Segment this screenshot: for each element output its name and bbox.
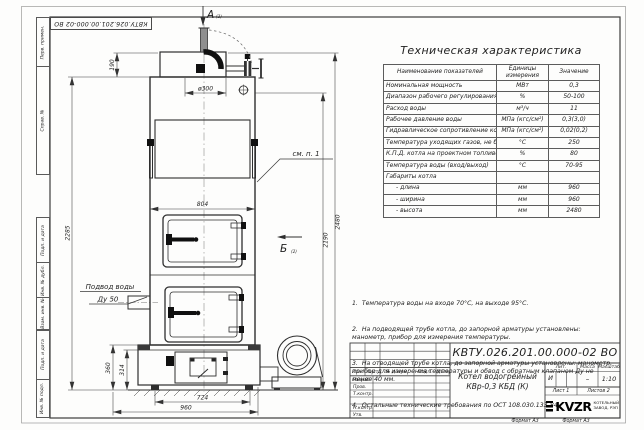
tb-row-nkontr: Н.контр.: [352, 405, 373, 412]
spec-row: Температура уходящих газов, не более°С25…: [384, 137, 600, 148]
tb-scale-label: Масштаб: [598, 365, 620, 371]
margin-field-inv-dubl: Инв. № дубл.: [36, 262, 50, 298]
ash-door: [166, 352, 228, 383]
middle-door: [163, 215, 246, 267]
tb-scale-value: 1:10: [598, 376, 620, 383]
format-label-2: Формат А3: [556, 419, 596, 424]
kvzr-logo-text: KVZR: [555, 399, 591, 414]
margin-field-inv-podl: Инв. № подл.: [36, 379, 50, 419]
upper-panel: [147, 120, 258, 178]
callout-see-item: см. п. 1: [292, 150, 319, 158]
dim-960-label: 960: [180, 405, 192, 412]
dim-2190-label: 2190: [323, 232, 330, 247]
tb-col-dokum: № докум.: [380, 369, 414, 376]
margin-field-vzam-inv: Взам. инв. №: [36, 297, 50, 330]
spec-row: Расход водым³/ч11: [384, 103, 600, 114]
tb-col-podp: Подп.: [414, 369, 436, 376]
spec-col-name: Наименование показателей: [384, 65, 497, 81]
margin-field-sprav-no: Справ. №: [36, 66, 50, 175]
manufacturer-logo: KVZR КОТЕЛЬНЫЙ ЗАВОД. РЭП: [546, 396, 619, 416]
view-a-ref: (2): [216, 14, 222, 19]
title-block-doc-number: КВТУ.026.201.00.000-02 ВО: [450, 344, 620, 362]
margin-field-podp-data-2: Подп. и дата: [36, 330, 50, 380]
spec-row: - ширинамм960: [384, 194, 600, 205]
tb-lit-value: И: [545, 375, 556, 382]
tb-col-list: Лист: [365, 369, 380, 376]
product-name: Котел водогрейный КВр-0,3 КБД (К): [451, 372, 544, 392]
margin-field-perv-primen: Перв. примен.: [36, 17, 50, 67]
view-b-ref: (2): [291, 249, 297, 254]
tb-row-tkontr: Т.контр.: [352, 391, 373, 398]
spec-row: К.П.Д. котла на проектном топливе%80: [384, 149, 600, 160]
spec-row: Номинальная мощностьМВт0,3: [384, 81, 600, 92]
tb-lit-label: Лит.: [545, 365, 577, 371]
spec-header-row: Наименование показателей Единицы измерен…: [384, 65, 600, 81]
spec-col-units: Единицы измерения: [497, 65, 549, 81]
dimensions: [68, 53, 339, 416]
kvzr-logo-tagline: КОТЕЛЬНЫЙ ЗАВОД. РЭП: [593, 401, 619, 411]
view-a-arrow: [201, 6, 206, 26]
doc-number-rotated-box: КВТУ.026.201.00.000-02 ВО: [50, 17, 152, 30]
lower-door: [165, 287, 244, 342]
water-inlet-label-2: Ду 50: [97, 296, 119, 304]
tb-mass-value: –: [577, 376, 598, 383]
water-inlet-label-1: Подвод воды: [86, 283, 135, 291]
dim-314-label: 314: [119, 364, 126, 376]
kvzr-logo-icon: [546, 401, 553, 412]
note-2: 2. На подводящей трубе котла, до запорно…: [352, 326, 614, 342]
tb-col-data: Дата: [436, 369, 450, 376]
drawing-sheet: ø300 190 2285 804 2480 2190 360 314 724 …: [0, 0, 644, 430]
dim-360-label: 360: [105, 362, 112, 374]
tb-mass-label: Масса: [577, 365, 598, 371]
tb-col-izm: Изм.: [350, 369, 365, 376]
spec-row: - длинамм960: [384, 183, 600, 194]
spec-row: Габариты котла: [384, 172, 600, 183]
format-label-1: Формат А3: [505, 419, 545, 424]
note-1: 1. Температура воды на входе 70°С, на вы…: [352, 300, 614, 308]
dim-190-label: 190: [109, 59, 116, 71]
view-b-label: Б: [280, 243, 287, 255]
tb-row-utv: Утв.: [352, 412, 373, 419]
spec-col-value: Значение: [549, 65, 600, 81]
doc-number-rotated: КВТУ.026.201.00.000-02 ВО: [54, 20, 148, 27]
spec-row: Температура воды (вход/выход)°С70-95: [384, 160, 600, 171]
fan-blower: [260, 336, 323, 391]
spec-row: Рабочее давление водыМПа (кгс/см²)0,3(3,…: [384, 115, 600, 126]
spec-row: - высотамм2480: [384, 206, 600, 217]
dim-804-label: 804: [197, 201, 209, 208]
tb-row-razrab: Разраб.: [352, 377, 373, 384]
dim-2480-label: 2480: [335, 214, 342, 229]
view-b-arrow: [277, 235, 302, 240]
callout-leader: [257, 159, 333, 182]
spec-table-title: Техническая характеристика: [383, 44, 599, 57]
dim-724-label: 724: [197, 395, 209, 402]
dim-2285-label: 2285: [65, 225, 72, 240]
product-name-line1: Котел водогрейный: [451, 372, 544, 382]
spec-row: Гидравлическое сопротивление котлаМПа (к…: [384, 126, 600, 137]
tb-row-prov: Пров.: [352, 384, 373, 391]
tb-sheet-number: Лист 1: [545, 389, 577, 395]
product-name-line2: КВр-0,3 КБД (К): [451, 382, 544, 392]
boiler-body: [128, 77, 338, 396]
tb-sheets-total: Листов 2: [577, 389, 620, 395]
spec-row: Диапазон рабочего регулирования%50-100: [384, 92, 600, 103]
margin-field-podp-data-1: Подп. и дата: [36, 217, 50, 263]
view-a-label: А: [206, 9, 214, 21]
dim-flue-diameter-label: ø300: [197, 86, 213, 93]
spec-table: Наименование показателей Единицы измерен…: [383, 64, 600, 218]
